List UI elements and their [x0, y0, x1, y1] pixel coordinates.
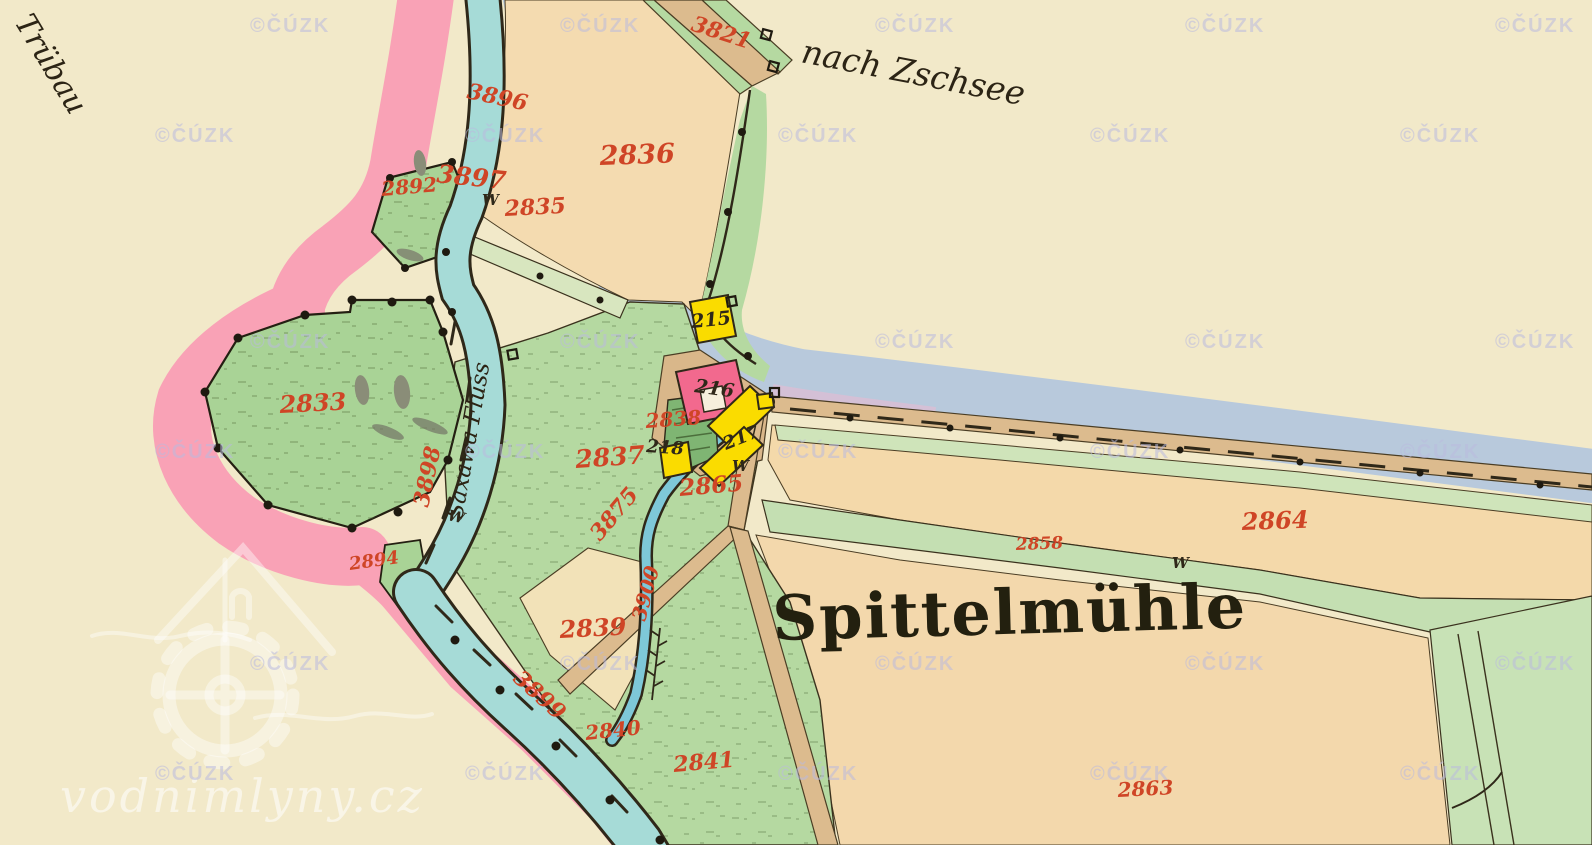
settlement-label: Spittelmühle — [771, 570, 1247, 655]
cuzk-watermark-3-3: ©ČÚZK — [1090, 439, 1170, 463]
parcel-label-2841: 2841 — [671, 747, 735, 778]
cuzk-watermark-4-0: ©ČÚZK — [250, 651, 330, 675]
cuzk-watermark-2-4: ©ČÚZK — [1495, 329, 1575, 353]
cuzk-watermark-5-2: ©ČÚZK — [778, 761, 858, 785]
cadastral-map-canvas: Spittelmühle nach Zschsee Trübau Saxawa … — [0, 0, 1592, 845]
cuzk-watermark-1-3: ©ČÚZK — [1090, 123, 1170, 147]
cuzk-watermark-0-2: ©ČÚZK — [875, 13, 955, 37]
cuzk-watermark-0-3: ©ČÚZK — [1185, 13, 1265, 37]
cuzk-watermark-0-4: ©ČÚZK — [1495, 13, 1575, 37]
parcel-label-2892: 2892 — [379, 172, 438, 201]
cuzk-watermark-2-1: ©ČÚZK — [560, 329, 640, 353]
cuzk-watermark-0-1: ©ČÚZK — [560, 13, 640, 37]
parcel-label-2858: 2858 — [1014, 533, 1063, 555]
parcel-label-2836: 2836 — [598, 138, 675, 172]
cuzk-watermark-4-2: ©ČÚZK — [875, 651, 955, 675]
parcel-label-2838: 2838 — [644, 405, 702, 433]
parcel-label-2864: 2864 — [1240, 505, 1309, 536]
building-label-218: 218 — [645, 436, 685, 460]
cuzk-watermark-5-4: ©ČÚZK — [1400, 761, 1480, 785]
meadow-symbol-2: W — [732, 457, 751, 475]
cuzk-watermark-4-3: ©ČÚZK — [1185, 651, 1265, 675]
cuzk-watermark-5-0: ©ČÚZK — [155, 761, 235, 785]
cuzk-watermark-3-4: ©ČÚZK — [1400, 439, 1480, 463]
parcel-label-2833: 2833 — [278, 387, 347, 420]
cuzk-watermark-1-2: ©ČÚZK — [778, 123, 858, 147]
parcel-label-2837: 2837 — [573, 440, 646, 474]
cuzk-watermark-1-1: ©ČÚZK — [465, 123, 545, 147]
cuzk-watermark-2-2: ©ČÚZK — [875, 329, 955, 353]
cuzk-watermark-3-1: ©ČÚZK — [465, 439, 545, 463]
map-art: Spittelmühle nach Zschsee Trübau Saxawa … — [0, 0, 1592, 845]
cuzk-watermark-3-0: ©ČÚZK — [155, 439, 235, 463]
cuzk-watermark-5-1: ©ČÚZK — [465, 761, 545, 785]
parcel-label-2835: 2835 — [503, 193, 567, 222]
cuzk-watermark-1-4: ©ČÚZK — [1400, 123, 1480, 147]
cuzk-watermark-2-3: ©ČÚZK — [1185, 329, 1265, 353]
cuzk-watermark-1-0: ©ČÚZK — [155, 123, 235, 147]
cuzk-watermark-4-4: ©ČÚZK — [1495, 651, 1575, 675]
cuzk-watermark-4-1: ©ČÚZK — [560, 651, 640, 675]
cuzk-watermark-3-2: ©ČÚZK — [778, 439, 858, 463]
parcel-label-2839: 2839 — [558, 612, 628, 645]
site-wordmark: vodnimlyny.cz — [60, 769, 425, 823]
meadow-symbol-0: W — [482, 191, 501, 209]
cuzk-watermark-5-3: ©ČÚZK — [1090, 761, 1170, 785]
cuzk-watermark-2-0: ©ČÚZK — [250, 329, 330, 353]
building-label-215: 215 — [689, 307, 732, 333]
cuzk-watermark-0-0: ©ČÚZK — [250, 13, 330, 37]
meadow-symbol-3: W — [1172, 554, 1191, 572]
building-junction-wood — [757, 393, 774, 409]
